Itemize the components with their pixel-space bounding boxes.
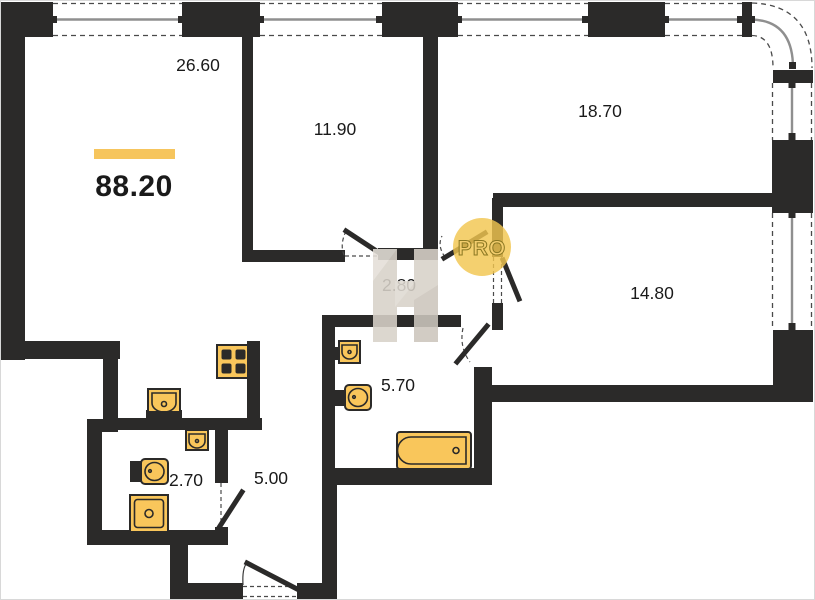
door-bathroom: [457, 326, 487, 362]
window: [662, 4, 744, 36]
total-area: 88.20: [94, 149, 175, 203]
accent-bar: [94, 149, 175, 159]
shower-icon: [130, 495, 168, 532]
window: [50, 4, 185, 36]
pro-badge-text: PRO: [458, 237, 507, 260]
letter-h-watermark: [373, 249, 438, 342]
room-area-wc: 2.70: [169, 470, 203, 490]
door-bedroom-left: [342, 231, 378, 257]
entrance-door: [243, 563, 297, 597]
floorplan-drawing: 88.20 26.60 11.90 18.70 14.80 2.80 5.70 …: [0, 0, 815, 600]
window: [773, 81, 812, 140]
room-area-corridor: 5.00: [254, 468, 288, 488]
room-area-bathroom: 5.70: [381, 375, 415, 395]
window: [257, 4, 383, 36]
washbasin-wc-icon: [186, 426, 208, 450]
kitchen-sink-icon: [146, 389, 182, 420]
total-area-label: 88.20: [95, 170, 173, 203]
corner-window: [748, 3, 812, 69]
bathtub-icon: [397, 432, 471, 469]
room-area-bedroom-right: 14.80: [630, 283, 674, 303]
toilet-wc-icon: [130, 459, 168, 484]
pro-badge-watermark: PRO: [453, 218, 511, 276]
window: [455, 4, 589, 36]
stove-icon: [217, 345, 248, 378]
window: [773, 211, 812, 330]
floorplan-canvas: 88.20 26.60 11.90 18.70 14.80 2.80 5.70 …: [0, 0, 815, 600]
room-area-bedroom-left: 11.90: [314, 119, 357, 139]
fixtures: [130, 341, 471, 532]
room-area-living-kitchen: 26.60: [176, 55, 220, 75]
toilet-bathroom-icon: [334, 385, 371, 410]
room-area-bedroom-top: 18.70: [578, 101, 622, 121]
washbasin-bathroom-icon: [334, 341, 360, 363]
door-wc: [220, 483, 242, 527]
